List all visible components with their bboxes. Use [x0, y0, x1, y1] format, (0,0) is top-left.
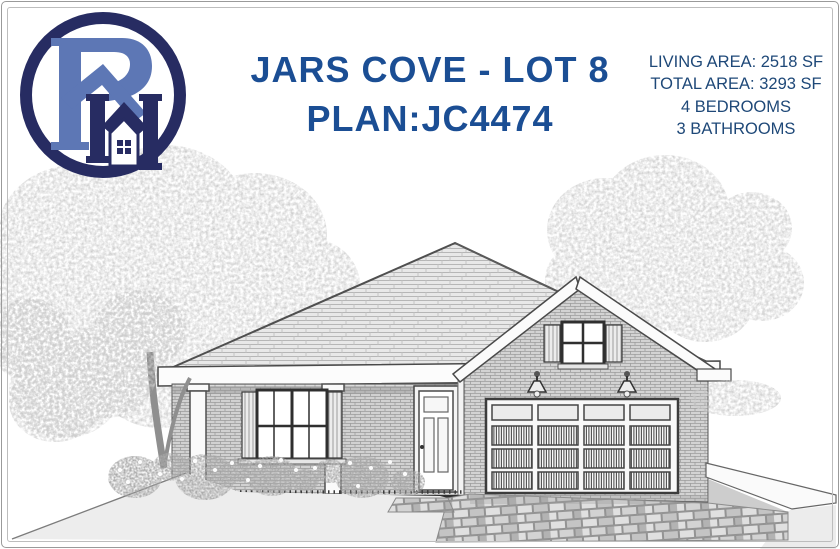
garage-door — [486, 399, 678, 493]
builder-logo — [6, 0, 196, 190]
spec-bedrooms: 4 BEDROOMS — [638, 96, 834, 118]
spec-bathrooms: 3 BATHROOMS — [638, 118, 834, 140]
gable-window — [544, 322, 622, 369]
spec-living-area: LIVING AREA: 2518 SF — [638, 51, 834, 73]
spec-list: LIVING AREA: 2518 SF TOTAL AREA: 3293 SF… — [638, 51, 834, 141]
front-window — [238, 390, 346, 464]
flyer-canvas: JARS COVE - LOT 8 PLAN:JC4474 LIVING ARE… — [0, 0, 840, 549]
community-lot-title: JARS COVE - LOT 8 — [218, 52, 642, 88]
spec-total-area: TOTAL AREA: 3293 SF — [638, 73, 834, 95]
plan-title-block: JARS COVE - LOT 8 PLAN:JC4474 — [218, 52, 642, 137]
door-knob — [420, 445, 424, 449]
plan-number: PLAN:JC4474 — [218, 101, 642, 137]
walkway — [388, 498, 454, 512]
